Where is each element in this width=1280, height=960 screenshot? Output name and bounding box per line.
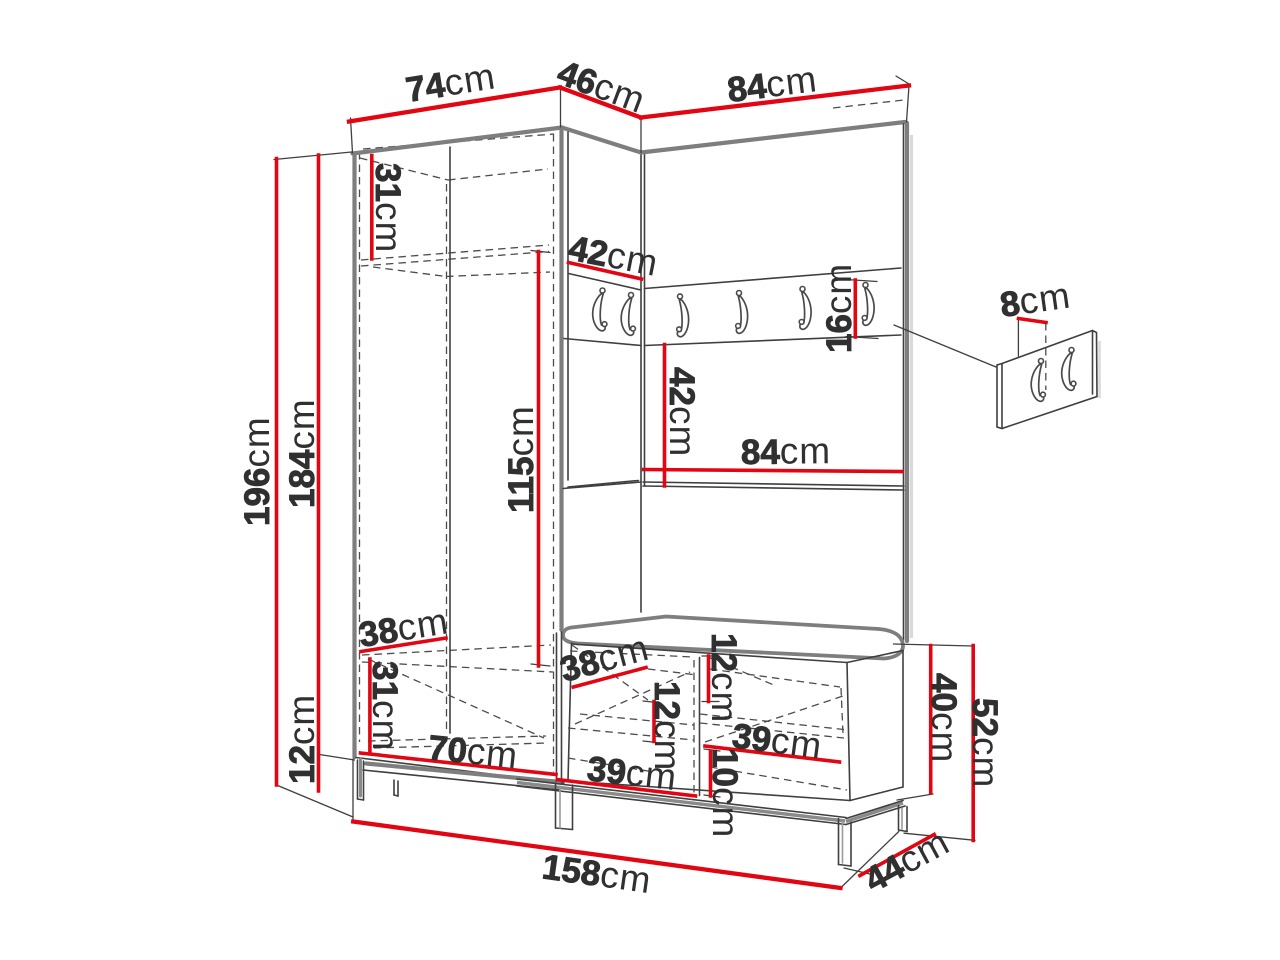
svg-text:184cm: 184cm <box>281 398 322 508</box>
svg-text:84cm: 84cm <box>741 430 832 472</box>
svg-text:12cm: 12cm <box>281 694 322 784</box>
svg-text:31cm: 31cm <box>365 661 406 751</box>
svg-text:42cm: 42cm <box>662 367 703 457</box>
svg-text:196cm: 196cm <box>236 416 277 526</box>
svg-text:115cm: 115cm <box>500 405 541 513</box>
svg-text:31cm: 31cm <box>368 163 409 253</box>
svg-text:12cm: 12cm <box>704 633 745 723</box>
svg-text:10cm: 10cm <box>705 748 746 838</box>
svg-text:52cm: 52cm <box>965 698 1006 788</box>
svg-text:40cm: 40cm <box>924 673 965 763</box>
svg-text:16cm: 16cm <box>818 263 859 353</box>
svg-text:12cm: 12cm <box>647 681 688 771</box>
